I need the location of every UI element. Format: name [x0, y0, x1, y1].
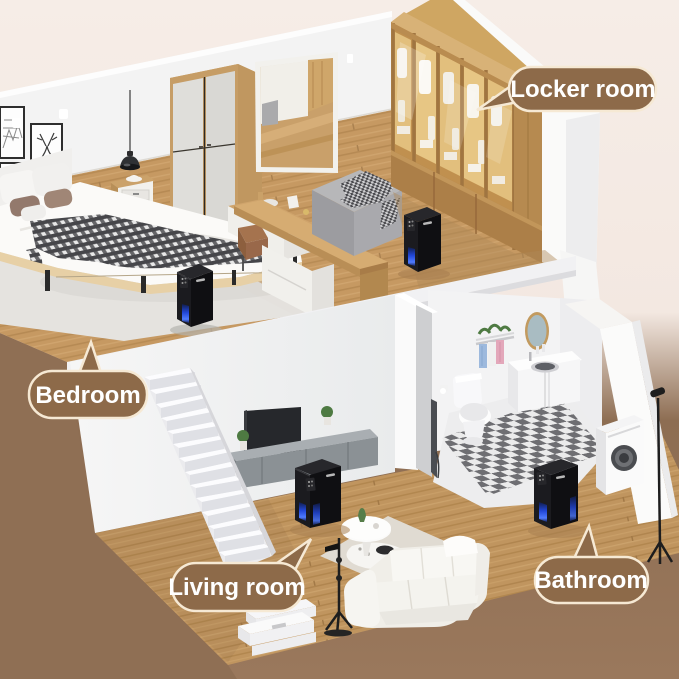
svg-text:Bathroom: Bathroom	[534, 567, 647, 594]
svg-text:Locker room: Locker room	[510, 76, 655, 103]
svg-text:Bedroom: Bedroom	[35, 382, 140, 409]
svg-text:Living room: Living room	[168, 574, 305, 601]
